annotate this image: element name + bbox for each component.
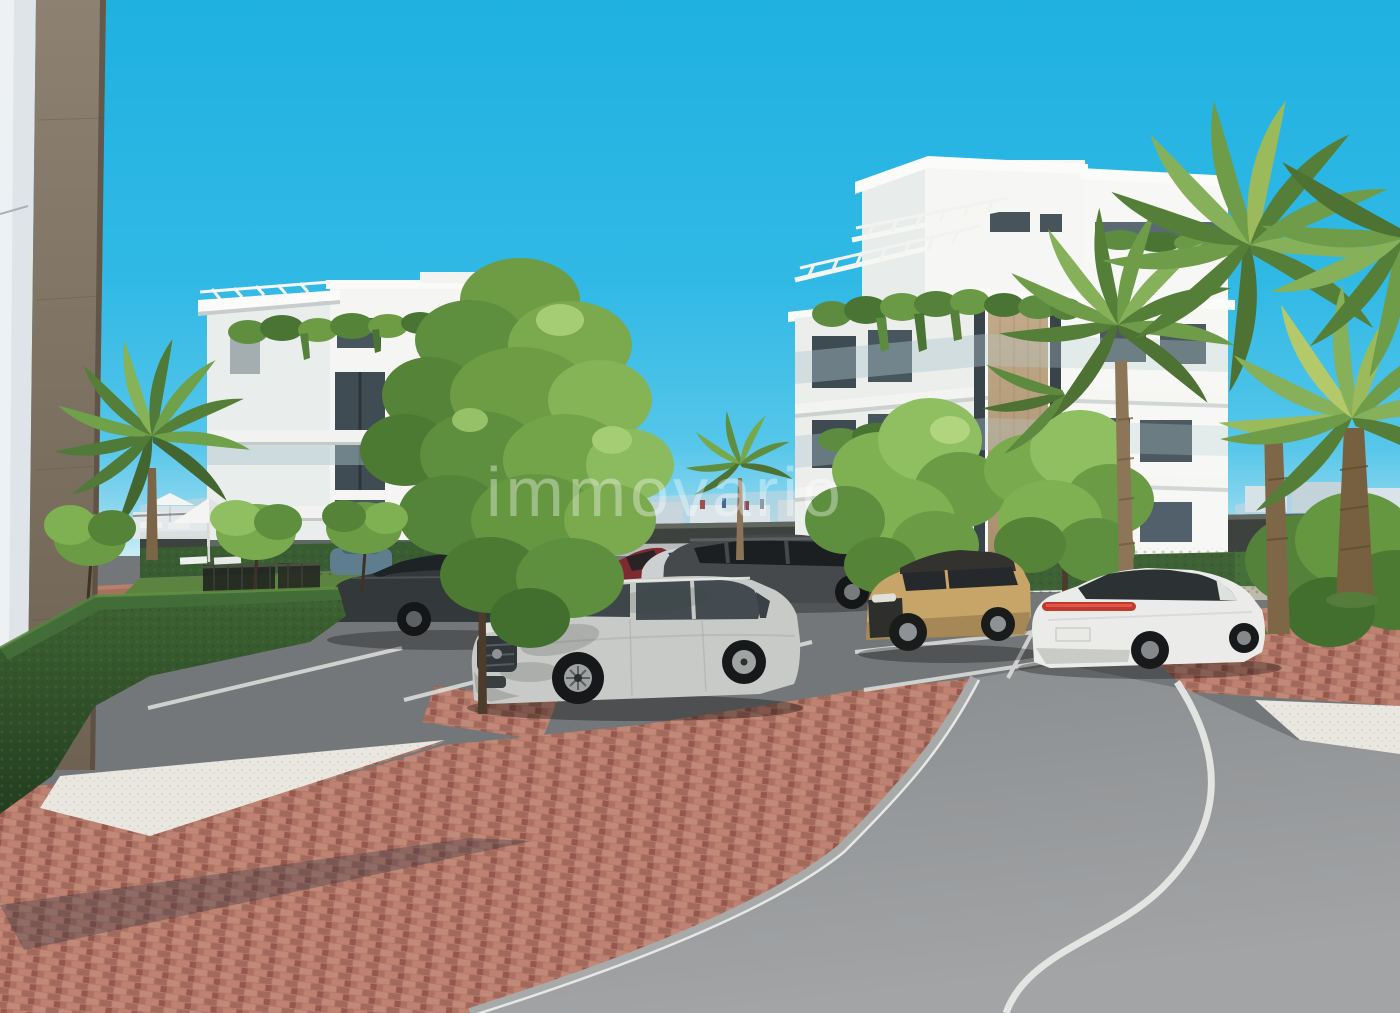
scene-render [0,0,1400,1013]
render-canvas: immovario [0,0,1400,1013]
